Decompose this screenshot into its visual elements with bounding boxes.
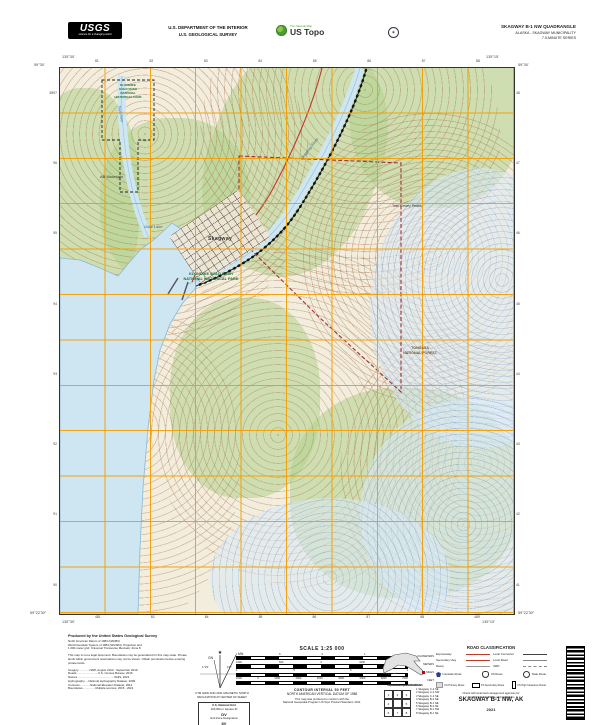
adjoining-cell: 3 [402,690,411,699]
local-road-swatch [523,660,547,661]
corner-top-left-lat: 59°30' [34,63,45,67]
sheet-name: SKAGWAY B-1 NW, AK [436,697,546,703]
scale-tick: 0 [350,670,351,673]
shield-label: US Route [491,673,503,676]
park-label-line: NATIONAL HISTORICAL PARK [184,277,239,282]
local-connector-swatch [523,654,547,655]
legend-label: Local Connector [493,652,520,656]
grid-label: 87 [366,616,370,619]
grid-label: 82 [149,60,153,63]
label-klondike-park-main: KLONDIKE GOLD RUSHNATIONAL HISTORICAL PA… [156,272,266,282]
scale-tick: 0 [322,654,323,657]
expressway-swatch [466,654,490,655]
legend-row: Expressway Local Connector [436,652,546,656]
grid-label: 92 [53,443,57,446]
us-route-shield-icon [482,671,489,678]
quadrangle-title-block: SKAGWAY B-1 NW QUADRANGLE ALASKA - SKAGW… [408,24,576,42]
corner-bottom-left-lon: 135°30' [62,620,75,624]
usgs-logo: USGS science for a changing world [68,22,122,39]
grid-label: 85 [313,60,317,63]
label-ab-mountain: AB Mountain [100,174,123,179]
taiya-river-water [121,76,148,236]
usng-box: U.S. National Grid 100,000-m Square ID D… [198,702,250,725]
grid-label: 41 [516,584,533,587]
gn-angle: 1°21' [202,665,209,669]
adjoining-quad-name: 8 Skagway B-1 SE [416,712,439,715]
scale-tick: .5 [293,670,295,673]
grid-label: 47 [516,162,533,165]
department-heading: U.S. DEPARTMENT OF THE INTERIOR U.S. GEO… [128,25,288,38]
legend-label: Ramp [436,664,463,668]
legend-row: Ramp 4WD [436,664,546,668]
park-label-line: HISTORICAL PARK [114,96,141,100]
alaska-outline-icon [380,648,430,678]
grid-label: 93 [53,373,57,376]
quad-subtitle-2: 7.5-MINUTE SERIES [408,36,576,41]
scale-tick: 1 [236,654,237,657]
datum-lines: North American Datum of 1983 (NAD83)Worl… [68,640,188,651]
scale-tick: 0 [257,678,258,681]
secondary-hwy-swatch [466,660,490,661]
adjoining-cell: 7 [393,708,402,717]
scale-tick: 1000 [236,662,242,665]
corner-top-left-lon: 135°30' [62,55,75,59]
scale-tick: 500 [279,662,283,665]
scale-tick: .5 [278,654,280,657]
gn-label: GN [208,656,214,660]
map-vector-layer [60,68,514,614]
fs-label: FS High Clearance Route [518,684,547,687]
credit-line: Boundaries................Multiple sourc… [68,687,188,691]
grid-label: 83 [151,616,155,619]
grid-labels-right: 4847464544434241 [516,92,533,587]
scale-tick: 1000 [359,662,365,665]
datum-line: 1 000-meter grid: Universal Transverse M… [68,647,188,651]
shield-label: Interstate Route [443,673,462,676]
us-topo-logo: The National Map US Topo [276,25,324,36]
adjoining-cell: 4 [384,699,393,708]
grid-label: 83 [204,60,208,63]
grid-label: 86 [313,616,317,619]
grid-label: 91 [53,513,57,516]
legend-title: ROAD CLASSIFICATION [436,645,546,650]
scale-tick: 1000 [236,678,242,681]
road-classification-legend: ROAD CLASSIFICATION Expressway Local Con… [436,645,546,699]
corner-bottom-right-lat: 59°22'30" [518,611,534,615]
map-disclaimer: This map is not a legal document. Bounda… [68,654,188,665]
adjoining-cell: 2 [393,690,402,699]
scale-tick: 5000 [360,678,366,681]
adjoining-cell: 8 [402,708,411,717]
quad-title: SKAGWAY B-1 NW QUADRANGLE [408,24,576,31]
legend-label: Local Road [493,658,520,662]
fs-secondary-icon [472,683,480,688]
fs-label: FS Secondary Route [481,684,504,687]
route-shield-row: Interstate Route US Route State Route [436,671,546,678]
us-topo-map-sheet: USGS science for a changing world U.S. D… [0,0,600,725]
usng-zone: 8V [199,721,249,725]
quad-location-marker [422,671,425,674]
dept-line-2: U.S. GEOLOGICAL SURVEY [128,32,288,39]
label-goat-lake: Goat Lake [144,224,162,229]
grid-label: 88 [420,616,424,619]
interstate-shield-icon [436,672,441,677]
adjoining-cell-current [393,699,402,708]
fs-high-clearance-icon [512,681,517,689]
grid-labels-bottom: 481838485868788489 [95,616,480,619]
sheet-year: 2021 [436,707,546,712]
scale-tick: 1 [236,670,237,673]
dept-line-1: U.S. DEPARTMENT OF THE INTERIOR [128,25,288,32]
grid-label: 96 [53,162,57,165]
grid-label: 87 [422,60,426,63]
grid-label: 45 [516,303,533,306]
grid-label: 43 [516,443,533,446]
interagency-emblem-icon: ✶ [388,27,399,38]
grid-label: 481 [95,616,101,619]
forest-route-row: FS Primary Route FS Secondary Route FS H… [436,681,546,689]
grid-labels-top: 8182838485868788 [95,60,480,63]
us-topo-wordmark: US Topo [290,28,324,37]
standard-line: National Geospatial Program US Topo Prod… [283,701,361,705]
state-locator: QUADRANGLE LOCATION [378,648,432,687]
legend-label: Secondary Hwy [436,658,463,662]
grid-labels-left: 659796959493929190 [40,92,57,587]
grid-label: 6597 [49,92,57,95]
grid-label: 88 [476,60,480,63]
adjoining-cell: 5 [402,699,411,708]
shield-label: State Route [532,673,546,676]
scale-tick: 3000 [317,678,323,681]
label-tongass-forest: TONGASSNATIONAL FOREST [390,346,450,355]
scale-tick: 1 [364,654,365,657]
4wd-swatch [523,666,547,667]
label-twin-dewey-peaks: Twin Dewey Peaks [392,204,422,208]
grid-label: 94 [53,303,57,306]
adjoining-grid: 1 2 3 4 5 6 7 8 [384,690,411,717]
corner-top-right-lat: 59°30' [518,63,529,67]
corner-bottom-right-lon: 135°15' [482,620,495,624]
legend-row: Secondary Hwy Local Road [436,658,546,662]
label-klondike-park-dyea: KLONDIKEGOLD RUSHNATIONALHISTORICAL PARK [102,84,154,100]
scale-tick: 2000 [296,678,302,681]
grid-label: 42 [516,513,533,516]
scale-tick: 0 [321,662,322,665]
grid-label: 86 [367,60,371,63]
usgs-logo-tagline: science for a changing world [79,34,112,37]
grid-label: 48 [516,92,533,95]
grid-label: 84 [258,60,262,63]
grid-label: 46 [516,232,533,235]
production-credits-block: Produced by the United States Geological… [68,634,188,691]
legend-label: 4WD [493,664,520,668]
grid-label: 95 [53,232,57,235]
ramp-swatch [466,666,490,667]
label-skagway-town: Skagway [208,236,232,242]
legend-label: Expressway [436,652,463,656]
forest-label-line: NATIONAL FOREST [403,351,437,356]
scale-tick: 4000 [338,678,344,681]
grid-label: 85 [259,616,263,619]
grid-label: 90 [53,584,57,587]
barcode [566,646,585,720]
grid-label: 489 [474,616,480,619]
state-route-shield-icon [523,671,530,678]
fs-label: FS Primary Route [445,684,465,687]
adjoining-cell: 1 [384,690,393,699]
data-credits: Imagery..............NAIP, August 2013 -… [68,669,188,692]
grid-label: 44 [516,373,533,376]
grid-label: 84 [205,616,209,619]
corner-top-right-lon: 135°15' [486,55,499,59]
adjoining-title: ADJOINING QUADRANGLES [372,684,438,687]
fs-primary-icon [436,682,443,688]
us-topo-globe-icon [276,25,287,36]
scale-tick: 1000 [274,678,280,681]
corner-bottom-left-lat: 59°22'30" [30,611,46,615]
grid-label: 81 [95,60,99,63]
adjoining-cell: 6 [384,708,393,717]
map-canvas: Goat Lake AB Mountain Skagway Twin Dewey… [59,67,515,615]
